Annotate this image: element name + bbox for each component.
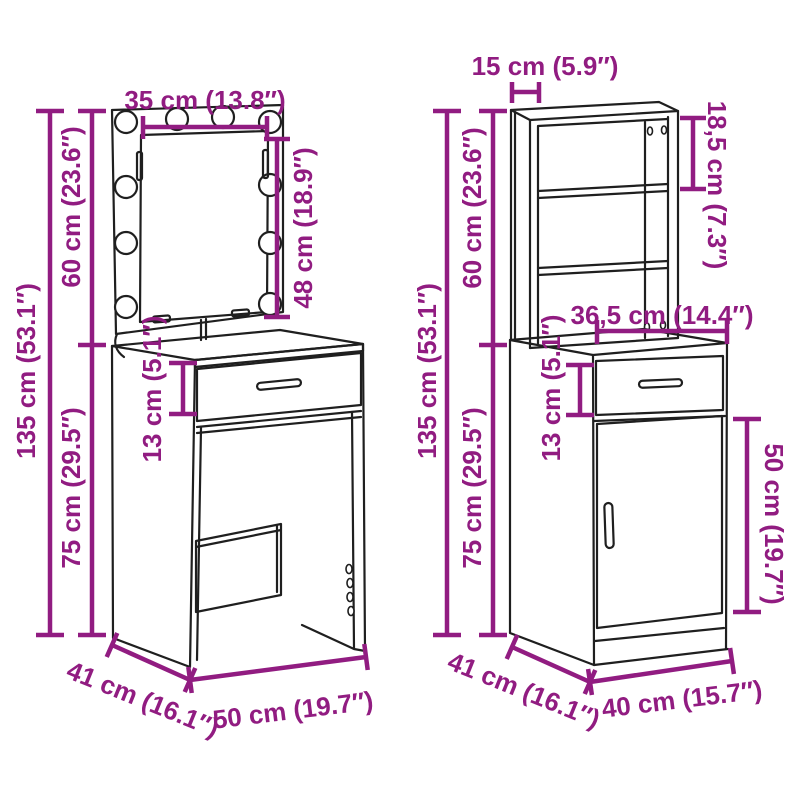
back-panel (196, 524, 281, 612)
dim-label-total-height-right: 135 cm (53.1″) (414, 283, 440, 459)
dim-line-mirror-width (143, 116, 267, 139)
drawer-handle (639, 379, 682, 388)
dim-line-door-height (733, 419, 761, 612)
hutch-top-face (511, 102, 678, 120)
dim-label-shelf-spacing: 18,5 cm (7.3″) (704, 101, 730, 270)
dim-label-mirror-inner-height: 48 cm (18.9″) (290, 147, 316, 308)
mirror-frame (112, 105, 283, 334)
dim-label-top-unit-height: 60 cm (23.6″) (459, 127, 485, 288)
door-handle (604, 503, 614, 548)
mirror-clip (137, 152, 142, 180)
dim-line-drawer-height (169, 363, 197, 414)
dim-label-drawer-height-left: 13 cm (5.1″) (139, 316, 165, 463)
drawer-rail (197, 411, 361, 433)
dim-label-base-height: 75 cm (29.5″) (459, 407, 485, 568)
dim-label-table-height: 75 cm (29.5″) (58, 407, 84, 568)
dim-line-top-depth (512, 82, 539, 103)
cabinet-drawer (596, 356, 723, 415)
cabinet-plinth (594, 628, 728, 665)
hutch-shelf (538, 261, 668, 275)
dim-label-door-height: 50 cm (19.7″) (761, 443, 787, 604)
furniture-dimension-diagram: 35 cm (13.8″) 60 cm (23.6″) 135 cm (53.1… (0, 0, 800, 800)
left-panel-inner-edge (197, 428, 201, 660)
dim-label-total-height-left: 135 cm (53.1″) (13, 283, 39, 459)
cabinet-door (597, 416, 722, 628)
dim-label-top-depth: 15 cm (5.9″) (472, 53, 619, 79)
dim-label-mirror-column-height: 60 cm (23.6″) (58, 126, 84, 287)
right-side-panel (302, 344, 365, 651)
dim-label-drawer-width: 36,5 cm (14.4″) (570, 302, 753, 328)
dim-label-drawer-height-right: 13 cm (5.1″) (538, 315, 564, 462)
mirror-glass (140, 131, 268, 322)
hutch-shelf (538, 184, 668, 198)
dim-line-width (188, 644, 367, 693)
cabinet-right-edge (726, 343, 727, 649)
drawer-handle (257, 379, 301, 390)
hutch-left-edge (511, 110, 530, 348)
dim-line-drawer-height (566, 365, 594, 415)
dim-label-mirror-width: 35 cm (13.8″) (124, 87, 285, 113)
